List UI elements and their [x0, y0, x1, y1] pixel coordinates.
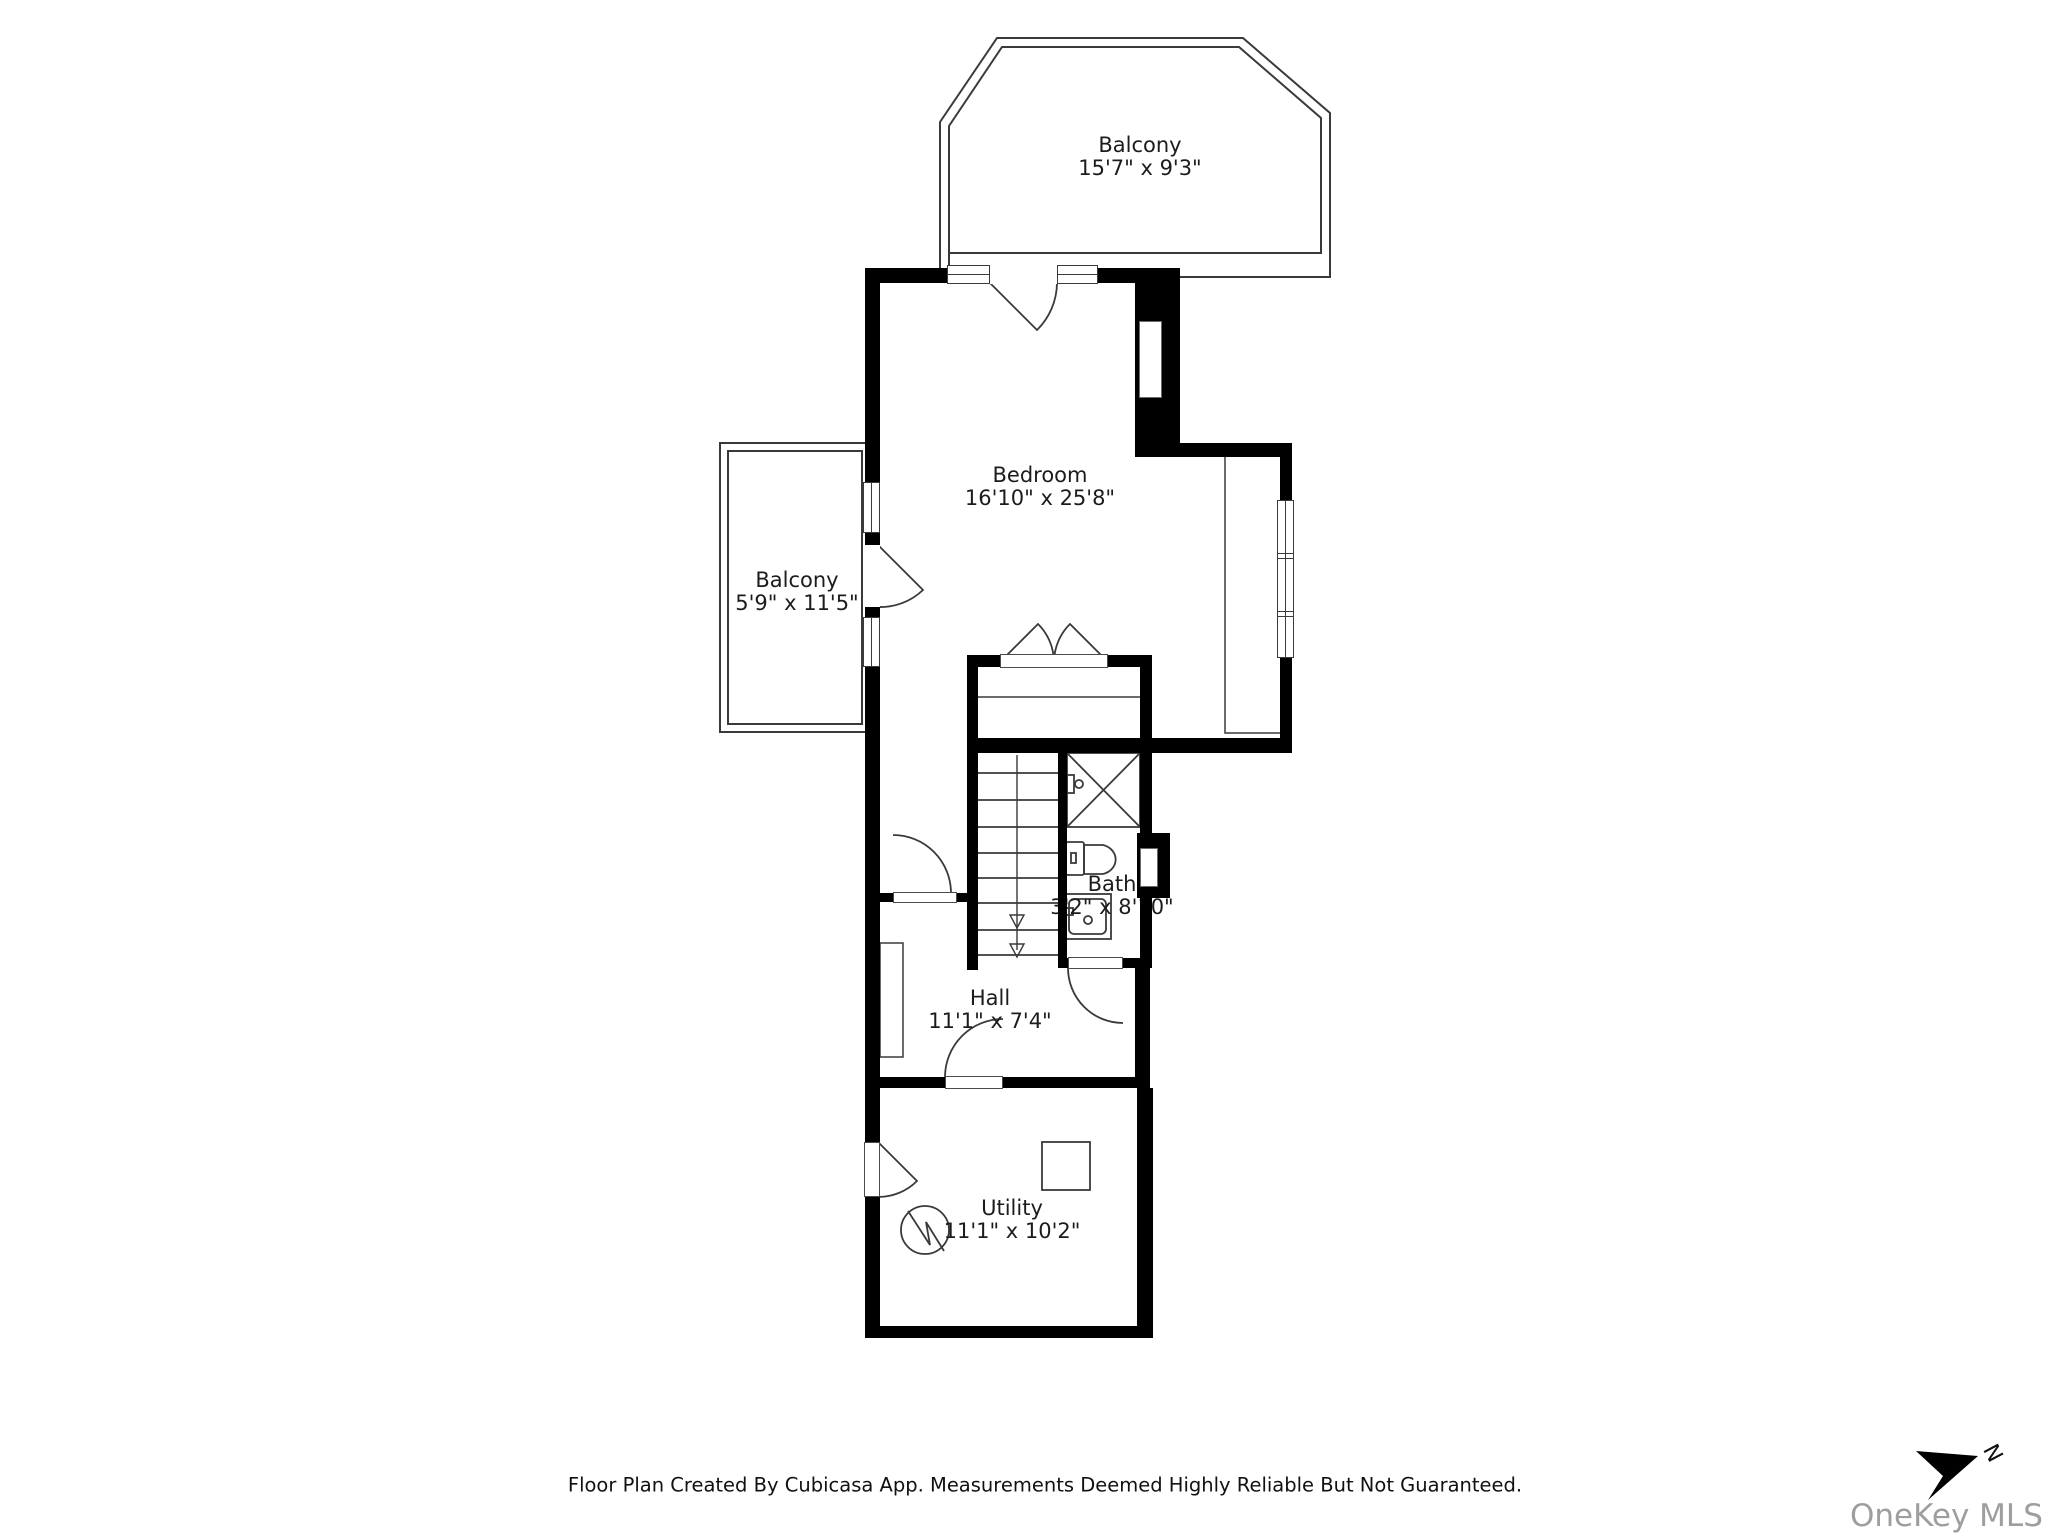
window-mullion	[1278, 616, 1293, 617]
door-opening-bedroom-hall	[893, 892, 957, 903]
window	[863, 482, 880, 533]
room-name: Balcony	[735, 569, 858, 592]
room-label-bedroom: Bedroom 16'10" x 25'8"	[965, 464, 1115, 510]
window-mullion	[871, 483, 872, 532]
room-label-balcony-left: Balcony 5'9" x 11'5"	[735, 569, 858, 615]
door-opening-bath	[1068, 957, 1123, 969]
door-arc-utility-left	[878, 1142, 917, 1197]
room-dims: 16'10" x 25'8"	[965, 487, 1115, 510]
floor-plan-linework	[0, 0, 2048, 1536]
electrical-panel-icon	[901, 1206, 949, 1254]
window-mullion	[871, 618, 872, 666]
window-mullion	[1278, 558, 1293, 559]
window	[947, 265, 990, 284]
window	[1057, 265, 1098, 284]
room-name: Bedroom	[965, 464, 1115, 487]
wall	[967, 667, 978, 970]
water-heater-icon	[1042, 1142, 1090, 1190]
door-opening-balcony-left	[864, 545, 880, 607]
room-dims: 3'2" x 8'10"	[1050, 896, 1173, 919]
bay-window-seat-lines	[1225, 456, 1280, 733]
door-opening-utility-left	[864, 1142, 880, 1197]
window	[863, 617, 880, 667]
room-label-balcony-top: Balcony 15'7" x 9'3"	[1078, 134, 1201, 180]
door-opening-utility-top	[945, 1076, 1003, 1089]
shower-icon	[1067, 753, 1140, 827]
room-name: Hall	[928, 987, 1051, 1010]
window-mullion	[1058, 274, 1097, 275]
wall	[1137, 1088, 1153, 1338]
wall	[1058, 748, 1067, 958]
floor-plan-canvas: Balcony 15'7" x 9'3" Balcony 5'9" x 11'5…	[0, 0, 2048, 1536]
hall-radiator-icon	[880, 943, 903, 1057]
wall	[865, 1077, 1150, 1088]
window-mullion	[1285, 501, 1286, 657]
wall	[978, 738, 1292, 753]
wall	[1140, 655, 1152, 968]
window-mullion	[1278, 611, 1293, 612]
door-arc-bedroom-top	[990, 283, 1057, 330]
toilet-icon	[1066, 842, 1116, 875]
window	[1277, 500, 1294, 658]
room-label-hall: Hall 11'1" x 7'4"	[928, 987, 1051, 1033]
window-mullion	[948, 274, 989, 275]
wall-niche	[1139, 321, 1162, 398]
room-name: Balcony	[1078, 134, 1201, 157]
room-name: Utility	[944, 1197, 1081, 1220]
room-dims: 11'1" x 7'4"	[928, 1010, 1051, 1033]
wall	[1135, 968, 1150, 1077]
room-label-utility: Utility 11'1" x 10'2"	[944, 1197, 1081, 1243]
door-arc-bath	[1068, 968, 1123, 1023]
wall-niche	[1140, 848, 1158, 887]
footer-disclaimer: Floor Plan Created By Cubicasa App. Meas…	[568, 1474, 1522, 1497]
room-dims: 11'1" x 10'2"	[944, 1220, 1081, 1243]
room-dims: 5'9" x 11'5"	[735, 592, 858, 615]
door-opening-bedroom-top	[990, 267, 1057, 284]
window-mullion	[1278, 553, 1293, 554]
door-arc-balcony-left	[878, 545, 923, 607]
wall	[865, 1326, 1153, 1338]
door-arc-bedroom-hall	[893, 835, 951, 893]
room-dims: 15'7" x 9'3"	[1078, 157, 1201, 180]
watermark-onekey-mls: OneKey MLS	[1850, 1498, 2043, 1534]
north-arrow-icon	[1916, 1451, 1978, 1500]
staircase	[978, 755, 1058, 957]
wall	[1162, 443, 1292, 457]
door-opening-closet	[1000, 654, 1108, 668]
